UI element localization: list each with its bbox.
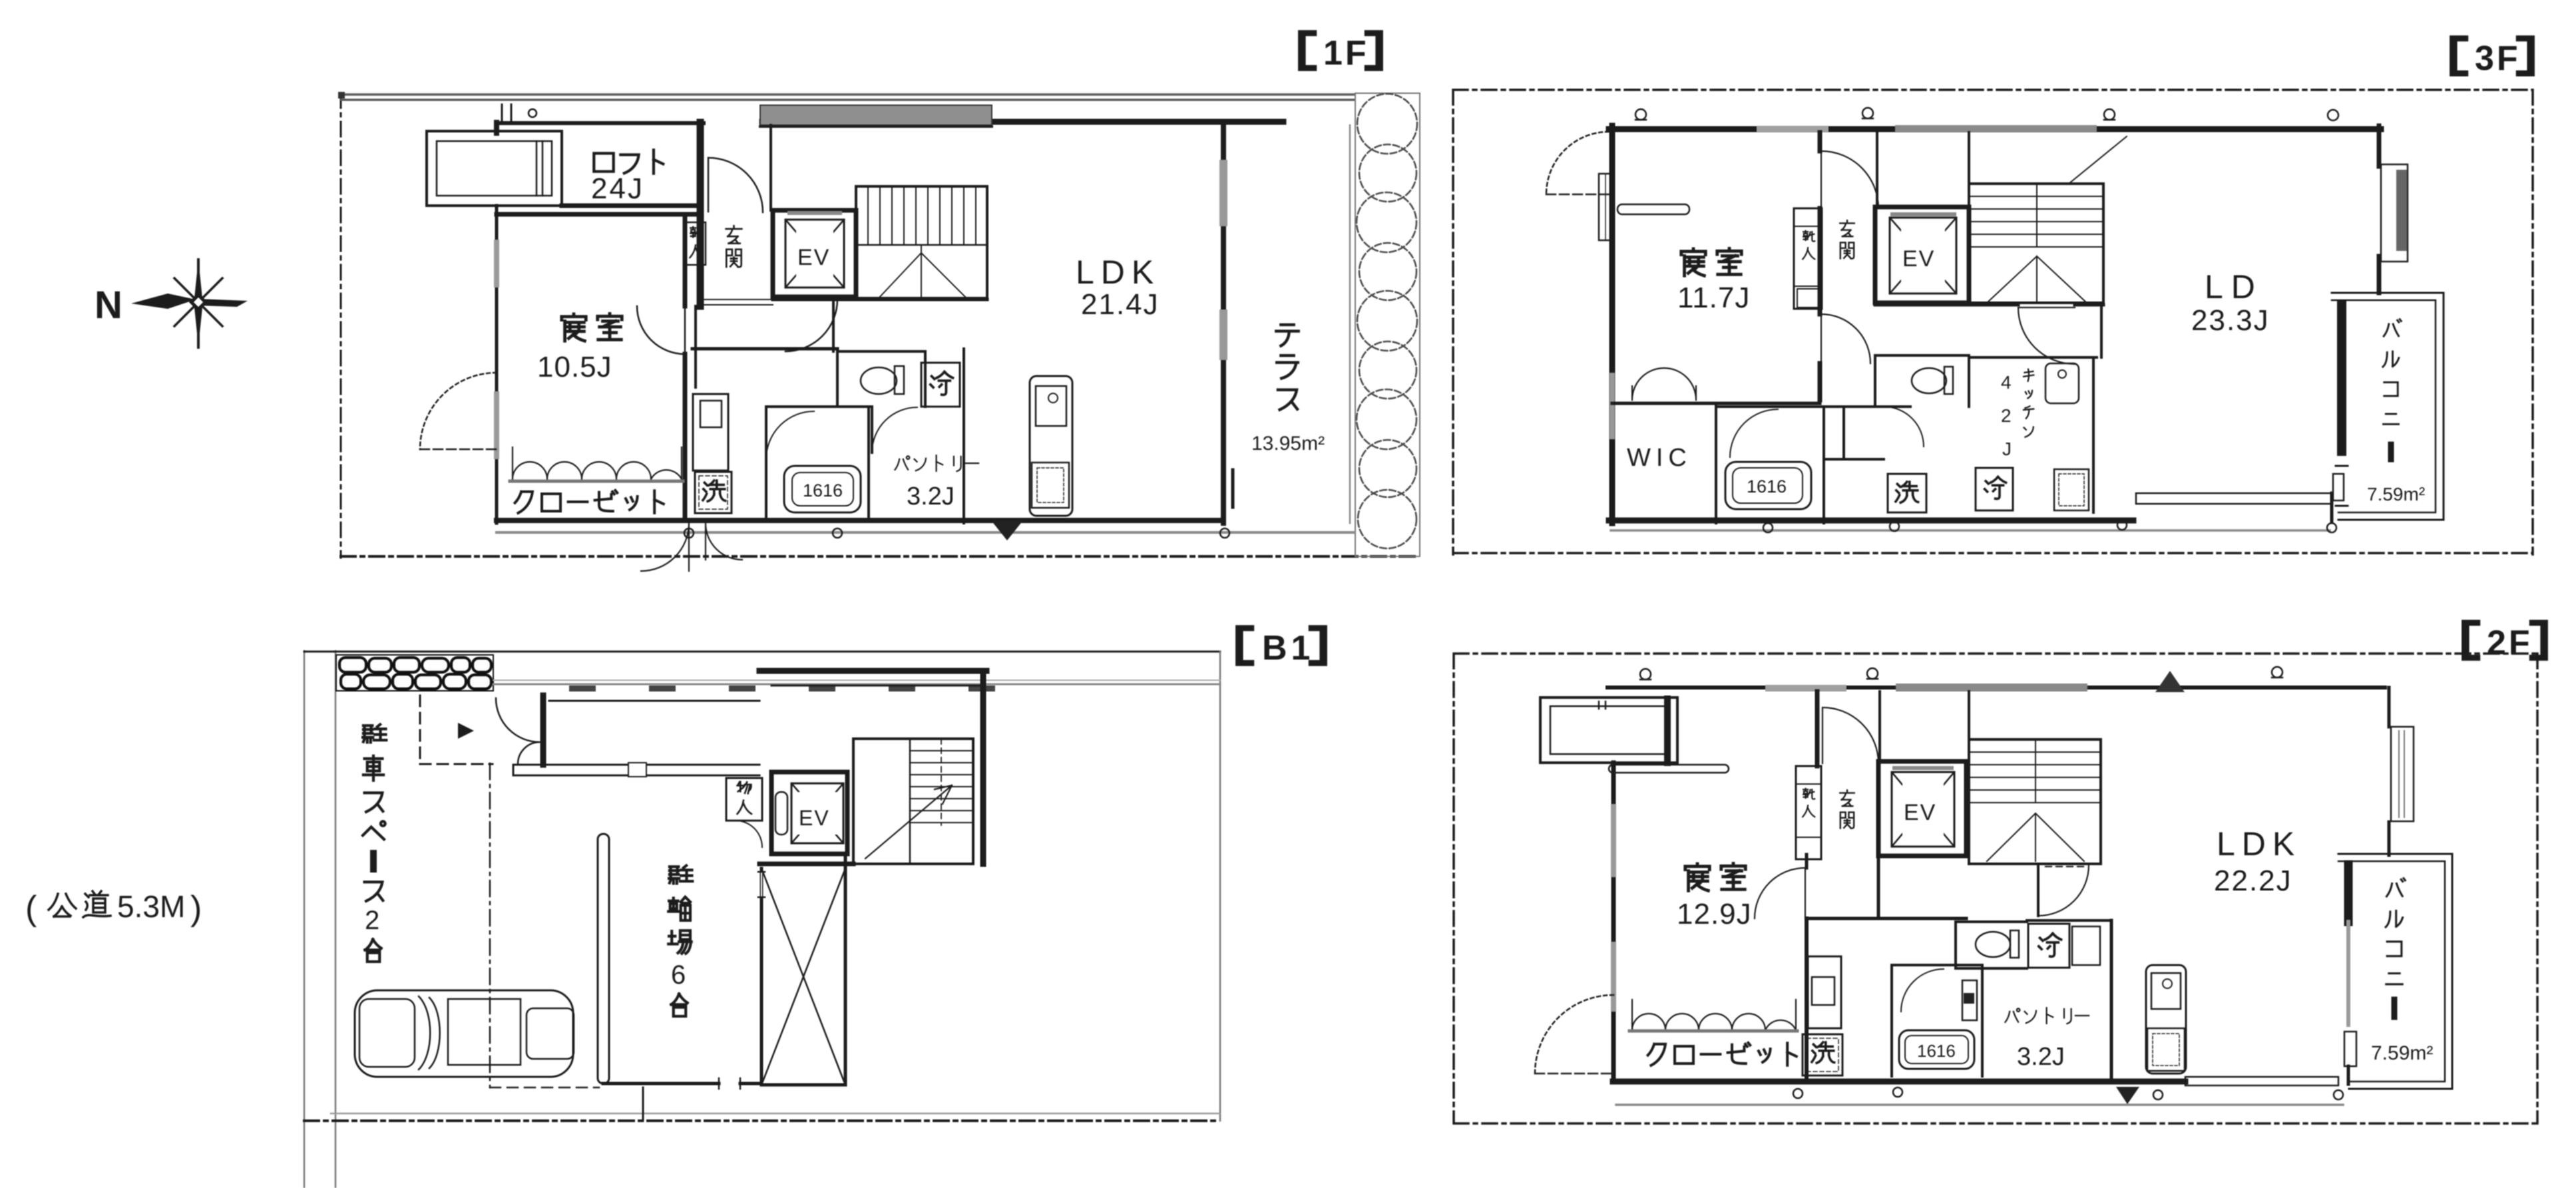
svg-text:22.2J: 22.2J [2214,865,2292,897]
svg-text:): ) [190,889,202,928]
svg-text:24J: 24J [591,172,644,205]
svg-text:21.4J: 21.4J [1081,288,1160,321]
svg-text:13.95m²: 13.95m² [1251,433,1325,455]
svg-text:11.7J: 11.7J [1677,282,1750,314]
svg-text:1616: 1616 [1747,477,1787,496]
svg-text:6: 6 [671,960,686,990]
svg-text:EV: EV [797,245,830,270]
svg-text:N: N [95,284,122,327]
svg-text:LD: LD [2205,268,2263,305]
svg-text:7.59m²: 7.59m² [2367,484,2425,504]
svg-text:5.3M: 5.3M [117,889,185,924]
svg-text:LDK: LDK [2217,825,2301,863]
svg-text:2F: 2F [2487,624,2533,662]
svg-text:1F: 1F [1323,34,1369,73]
svg-text:EV: EV [1902,246,1935,272]
svg-text:WIC: WIC [1627,444,1692,472]
svg-text:3F: 3F [2475,39,2521,78]
svg-text:3.2J: 3.2J [2017,1043,2065,1071]
svg-text:LDK: LDK [1076,254,1160,291]
svg-text:12.9J: 12.9J [1677,898,1752,930]
svg-text:2: 2 [365,906,379,935]
svg-text:EV: EV [1904,800,1936,825]
svg-text:7.59m²: 7.59m² [2371,1042,2433,1064]
svg-text:10.5J: 10.5J [537,351,612,383]
svg-text:1616: 1616 [803,481,843,500]
svg-text:(: ( [25,889,37,928]
svg-text:3.2J: 3.2J [907,483,955,510]
svg-text:J: J [2002,439,2012,459]
svg-text:4: 4 [2001,372,2012,393]
svg-text:2: 2 [2001,405,2012,426]
svg-text:B1: B1 [1262,629,1314,668]
svg-text:EV: EV [799,806,830,830]
svg-text:1616: 1616 [1917,1041,1956,1061]
svg-text:23.3J: 23.3J [2191,304,2270,337]
